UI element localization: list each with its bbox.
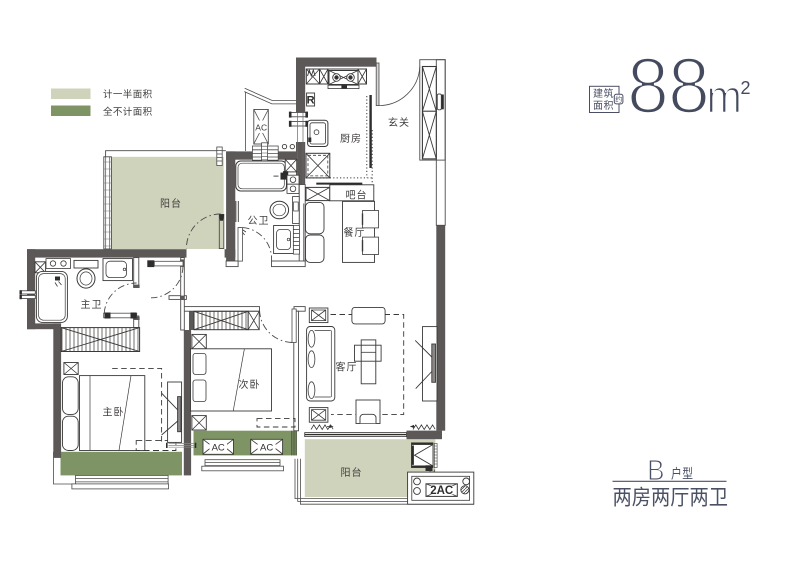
svg-text:计一半面积: 计一半面积: [103, 89, 153, 101]
svg-text:AC: AC: [255, 122, 267, 132]
svg-text:玄关: 玄关: [388, 116, 410, 129]
svg-text:公卫: 公卫: [248, 216, 270, 227]
svg-text:88: 88: [627, 42, 709, 130]
svg-text:吧台: 吧台: [346, 189, 368, 202]
svg-text:主卧: 主卧: [103, 406, 125, 419]
svg-text:次卧: 次卧: [239, 378, 261, 391]
svg-text:厨房: 厨房: [340, 132, 362, 145]
svg-text:全不计面积: 全不计面积: [103, 106, 153, 118]
svg-text:2AC: 2AC: [430, 485, 453, 497]
svg-text:面积: 面积: [593, 100, 614, 112]
svg-text:2: 2: [741, 78, 751, 98]
svg-text:主卫: 主卫: [81, 299, 103, 311]
svg-text:餐厅: 餐厅: [344, 226, 366, 239]
svg-text:m: m: [706, 72, 742, 123]
svg-text:阳台: 阳台: [160, 197, 182, 210]
svg-text:约: 约: [615, 95, 622, 104]
svg-text:AC: AC: [260, 443, 273, 454]
svg-text:两房两厅两卫: 两房两厅两卫: [613, 487, 729, 510]
svg-text:户型: 户型: [671, 465, 693, 482]
svg-text:AC: AC: [212, 443, 225, 454]
svg-text:建筑: 建筑: [593, 87, 614, 100]
svg-text:R: R: [307, 94, 315, 106]
svg-text:阳台: 阳台: [341, 466, 363, 479]
svg-text:客厅: 客厅: [336, 361, 358, 374]
